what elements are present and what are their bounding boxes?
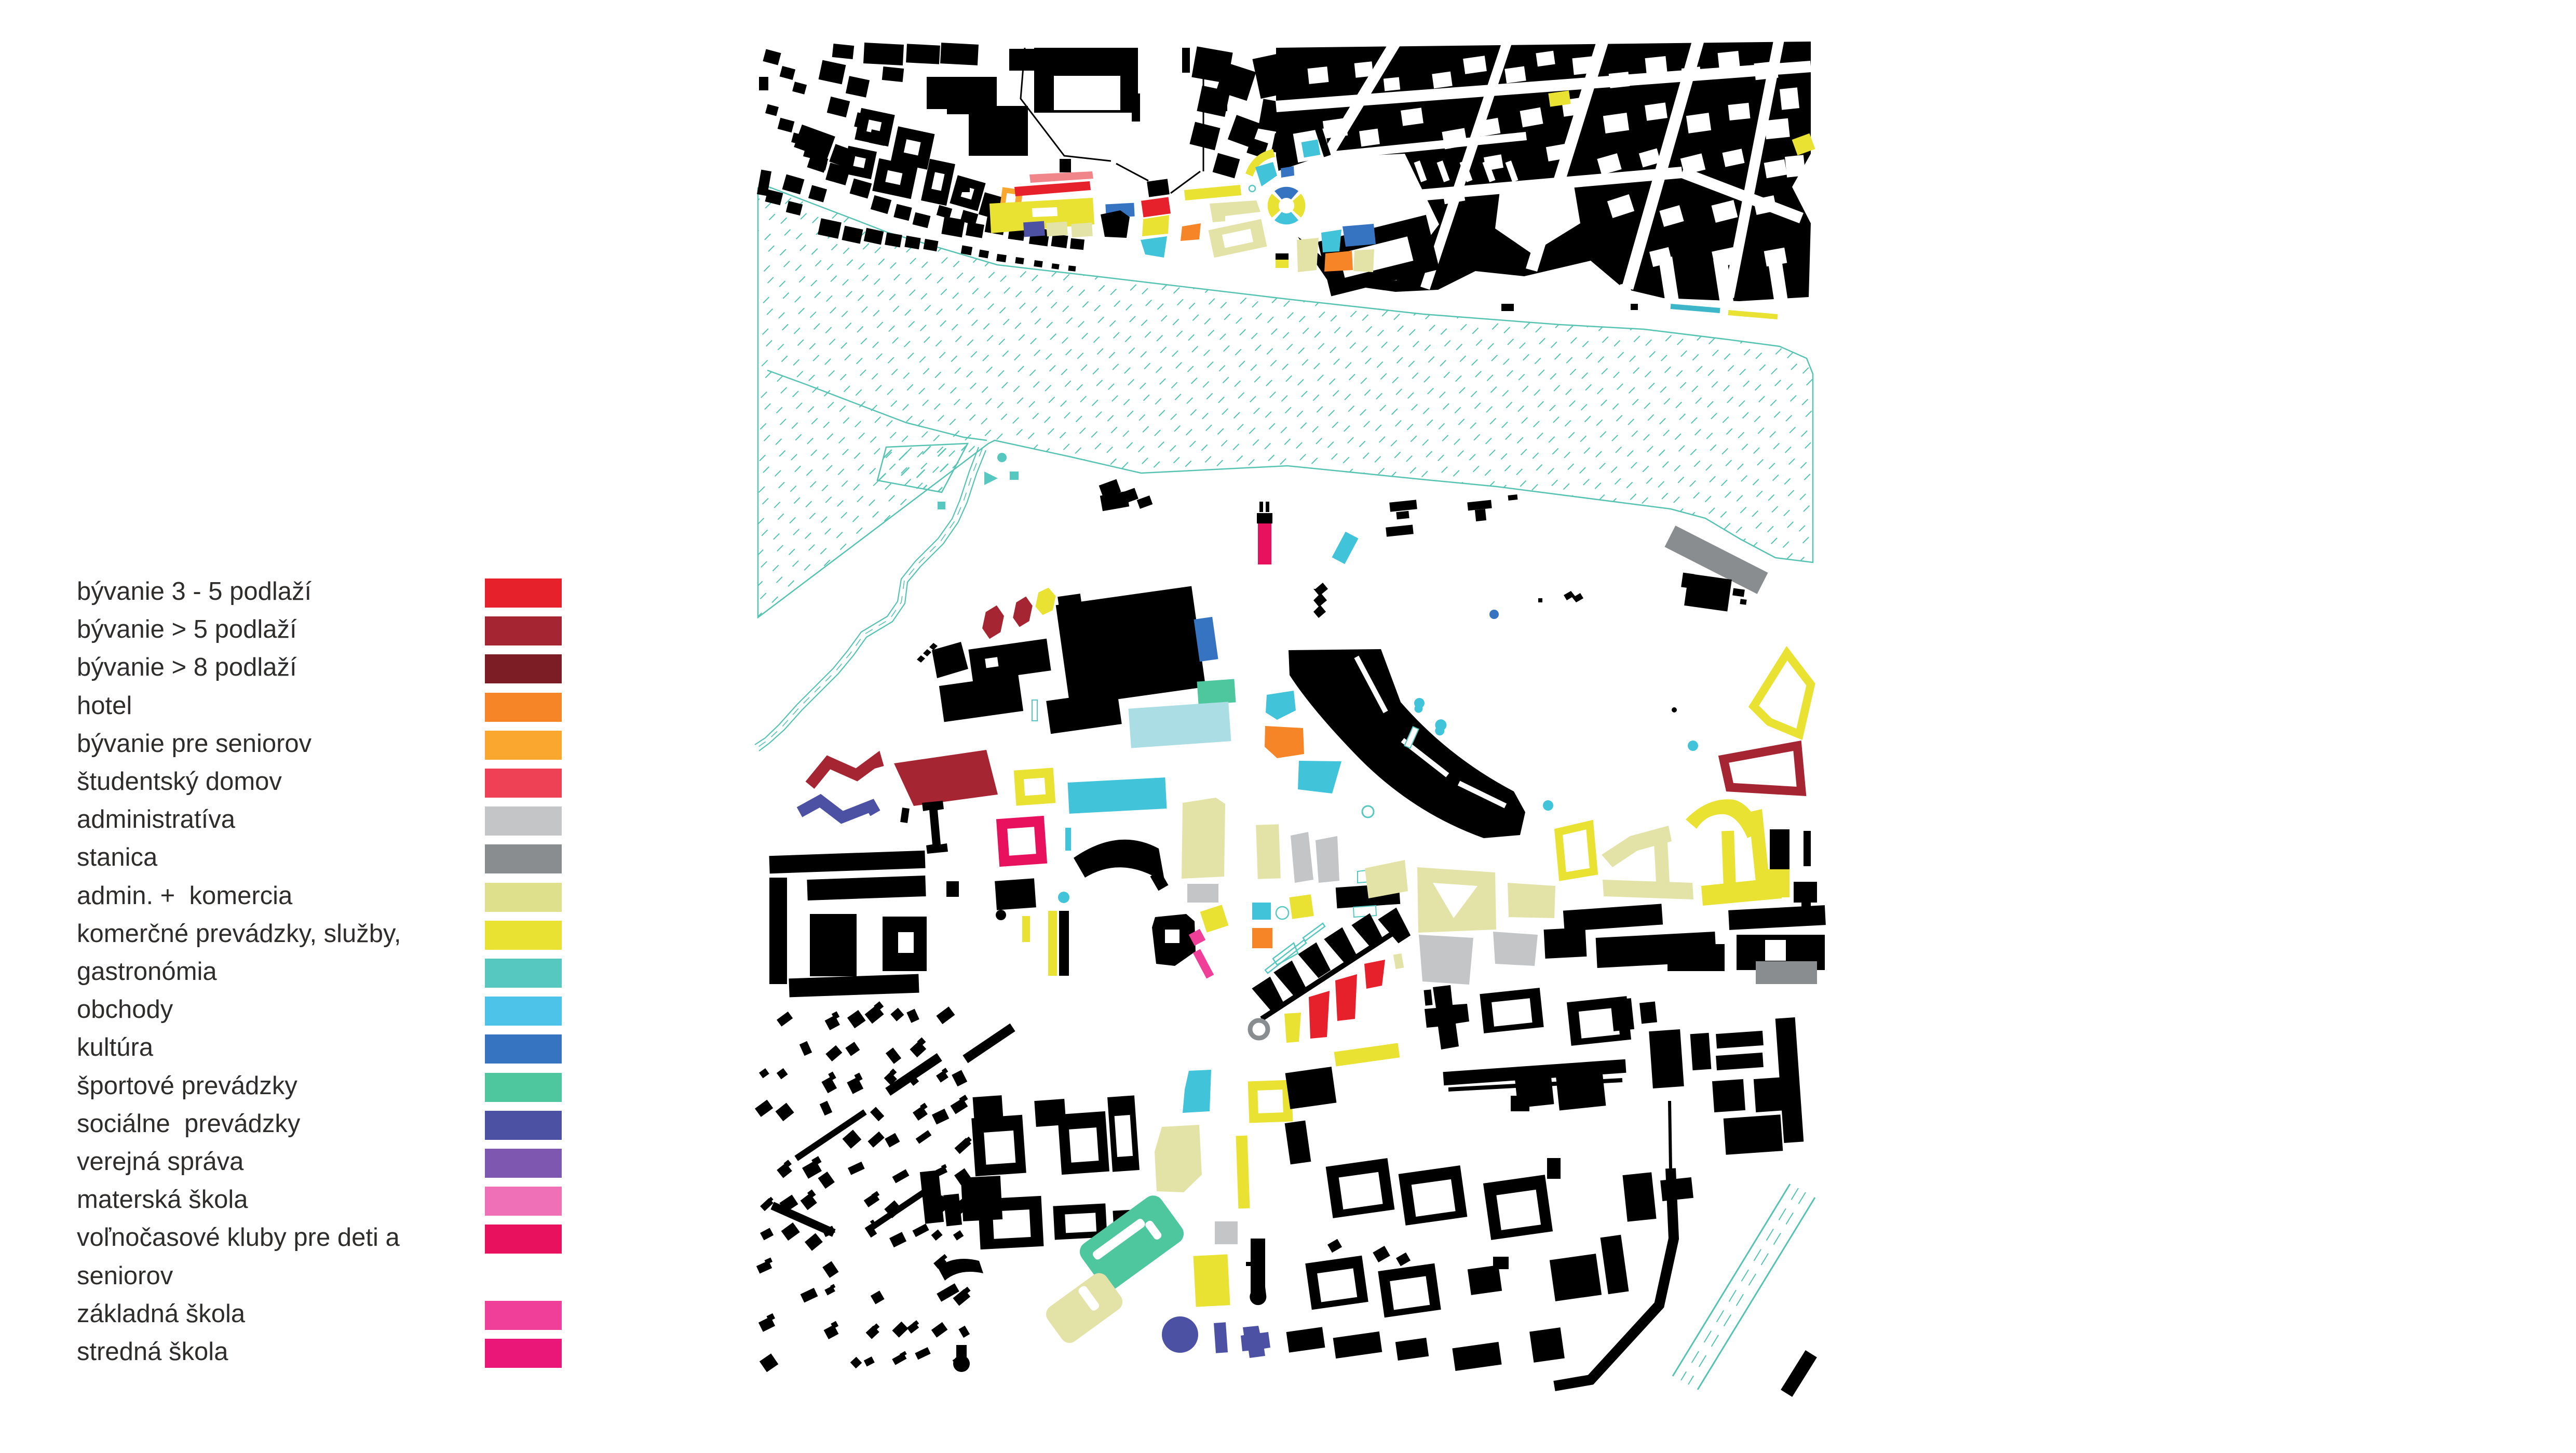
svg-text:komerčné prevádzky, služby,: komerčné prevádzky, služby, [77,920,401,948]
svg-text:administratíva: administratíva [77,805,236,833]
svg-text:stredná škola: stredná škola [77,1338,228,1366]
svg-text:bývanie > 5 podlaží: bývanie > 5 podlaží [77,615,297,643]
svg-text:bývanie 3 - 5 podlaží: bývanie 3 - 5 podlaží [77,577,312,606]
svg-text:sociálne prevádzky: sociálne prevádzky [77,1110,301,1138]
svg-text:bývanie > 8 podlaží: bývanie > 8 podlaží [77,653,297,681]
svg-text:bývanie pre seniorov: bývanie pre seniorov [77,730,312,758]
svg-text:voľnočasové kluby pre deti a: voľnočasové kluby pre deti a [77,1223,400,1252]
svg-text:kultúra: kultúra [77,1033,154,1061]
svg-text:materská škola: materská škola [77,1186,248,1214]
svg-text:verejná správa: verejná správa [77,1148,244,1176]
svg-text:študentský domov: študentský domov [77,768,282,796]
svg-text:stanica: stanica [77,843,158,871]
svg-text:hotel: hotel [77,692,132,720]
svg-text:gastronómia: gastronómia [77,958,217,986]
svg-text:obchody: obchody [77,995,173,1024]
svg-text:základná škola: základná škola [77,1300,246,1328]
svg-text:športové prevádzky: športové prevádzky [77,1072,297,1100]
svg-text:seniorov: seniorov [77,1262,173,1290]
svg-text:admin. + komercia: admin. + komercia [77,882,293,910]
